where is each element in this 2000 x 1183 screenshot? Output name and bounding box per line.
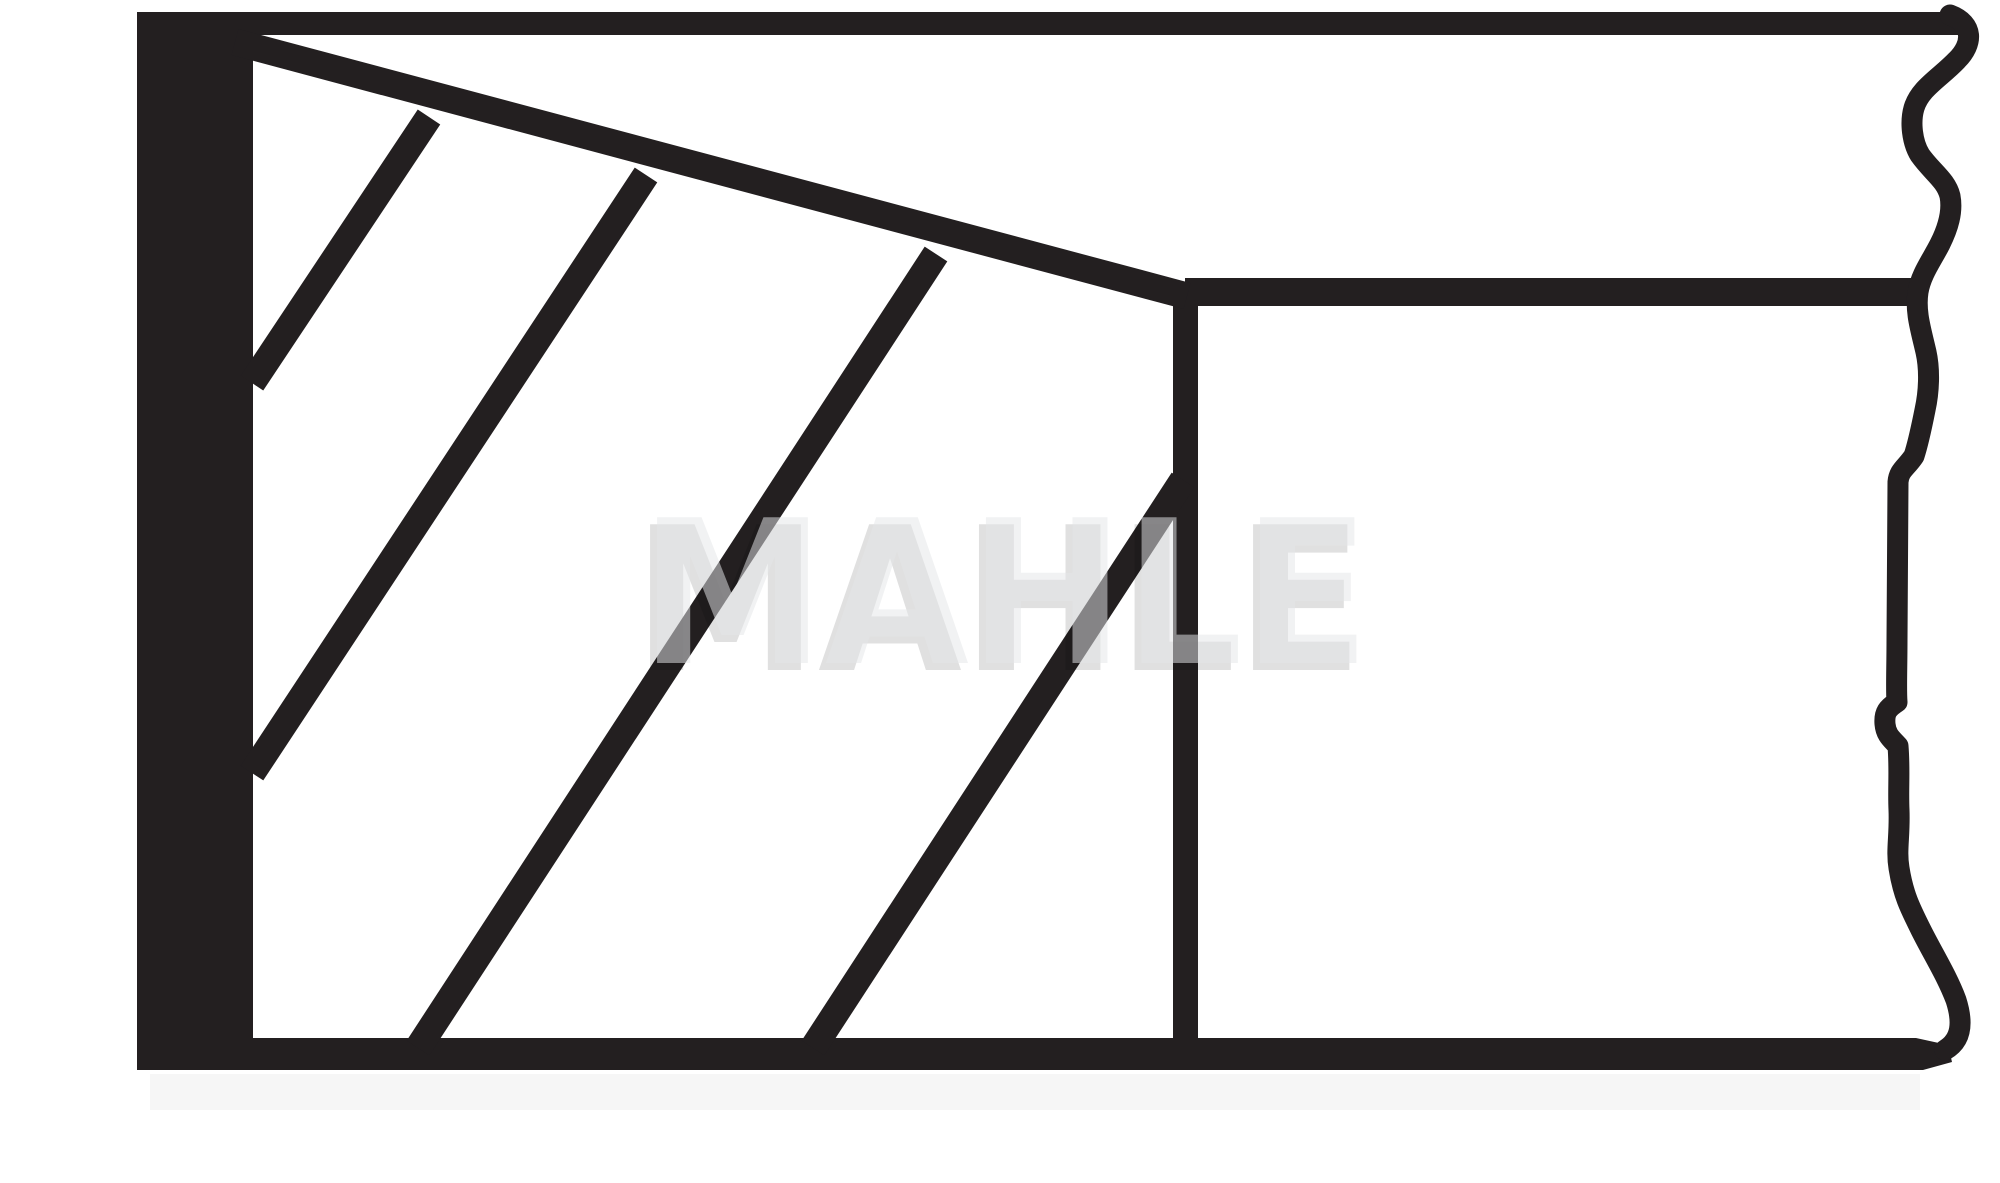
groove-top-line — [1185, 278, 1918, 306]
hatch-line-2 — [252, 175, 646, 773]
watermark-text: MAHLE — [640, 478, 1370, 711]
scan-shadow-strip — [150, 1074, 1920, 1110]
top-flank-line — [137, 12, 1958, 35]
technical-drawing: MAHLE MAHLE — [0, 0, 2000, 1183]
bottom-flank-line — [137, 1038, 1952, 1070]
left-face-bar — [137, 12, 253, 1070]
taper-face-line — [235, 42, 1187, 296]
piston-ring-diagram: MAHLE MAHLE — [0, 0, 2000, 1183]
break-line-right — [1885, 15, 1969, 1050]
hatch-line-1 — [252, 117, 429, 383]
